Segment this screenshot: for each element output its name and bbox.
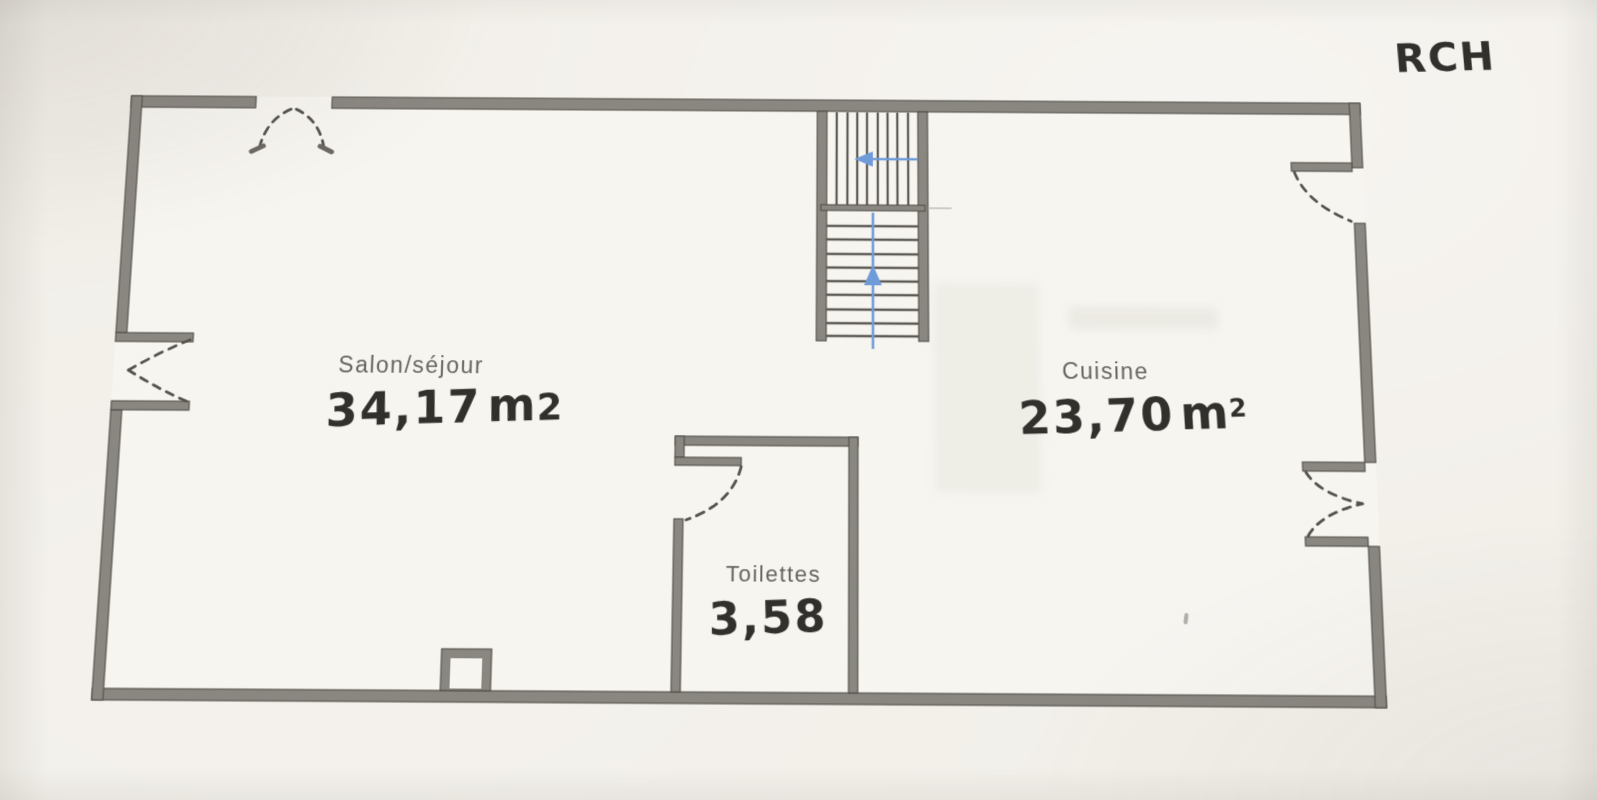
bottom-pillar	[440, 649, 492, 691]
floorplan-page: Salon/séjour 34,17m2 Cuisine 23,70m2 Toi…	[0, 7, 1597, 800]
stair-landing-divider	[821, 205, 925, 211]
floor-interior	[92, 96, 1387, 708]
floorplan-photo: Salon/séjour 34,17m2 Cuisine 23,70m2 Toi…	[0, 0, 1597, 800]
floorplan-drawing	[0, 7, 1597, 800]
